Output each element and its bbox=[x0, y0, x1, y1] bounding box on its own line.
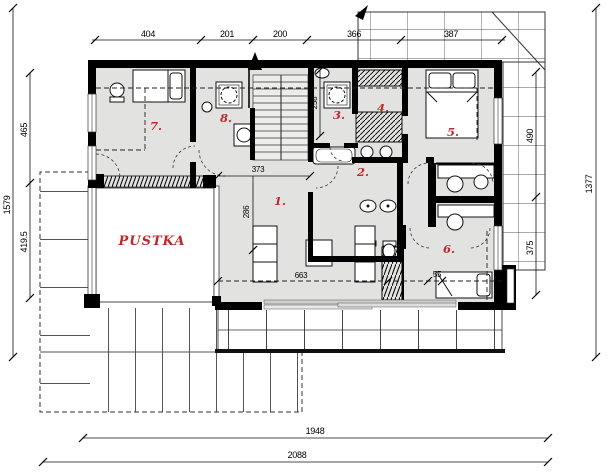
dim-left-inner-2: 419.5 bbox=[19, 231, 29, 252]
void-label: PUSTKA bbox=[117, 234, 185, 249]
wardrobe2-room4-icon bbox=[356, 112, 402, 142]
bed-room7-icon bbox=[133, 70, 185, 102]
armchair-right-icon bbox=[355, 226, 375, 282]
dim-top-4: 366 bbox=[347, 29, 361, 39]
dim-interior-286: 286 bbox=[242, 205, 251, 218]
dim-interior-258: 258 bbox=[310, 96, 319, 109]
dim-left-outer: 1579 bbox=[2, 195, 12, 214]
room-label-2: 2. bbox=[356, 165, 369, 179]
armchair-left-icon bbox=[253, 226, 277, 282]
room-label-7: 7. bbox=[150, 119, 162, 133]
dim-interior-55: 55 bbox=[433, 270, 442, 279]
stool-room7-icon bbox=[110, 83, 124, 102]
wardrobe-room4-icon bbox=[356, 70, 402, 86]
dim-right-inner-1: 490 bbox=[525, 129, 535, 143]
room-label-3: 3. bbox=[333, 108, 345, 122]
dim-bottom-1: 1948 bbox=[306, 426, 325, 436]
dim-interior-663: 663 bbox=[295, 271, 308, 280]
dim-top-1: 404 bbox=[141, 29, 155, 39]
dim-interior-373: 373 bbox=[252, 165, 265, 174]
floor-plan-drawing: 404 201 200 366 387 1579 465 419.5 1377 … bbox=[0, 0, 608, 474]
dim-left-inner-1: 465 bbox=[19, 123, 29, 137]
dim-top-3: 200 bbox=[273, 29, 287, 39]
bathtub-icon bbox=[313, 147, 355, 164]
room-label-4: 4. bbox=[377, 101, 389, 115]
dim-right-outer: 1377 bbox=[584, 174, 594, 193]
room-label-5: 5. bbox=[447, 125, 459, 139]
chair-room4-icon bbox=[361, 146, 373, 158]
terrace-deck bbox=[215, 308, 505, 353]
bed-room6-icon bbox=[436, 272, 492, 298]
sliding-door bbox=[262, 300, 458, 310]
chair2-room4-icon bbox=[380, 146, 392, 158]
floor-plan-canvas: 404 201 200 366 387 1579 465 419.5 1377 … bbox=[0, 0, 608, 474]
shower-room3-icon bbox=[324, 82, 350, 108]
room-label-6: 6. bbox=[443, 242, 455, 256]
dim-bottom-2: 2088 bbox=[288, 450, 307, 460]
balustrade-hatch bbox=[96, 176, 206, 187]
room-label-1: 1. bbox=[274, 194, 286, 208]
dim-right-inner-2: 375 bbox=[525, 241, 535, 255]
sink-room8-icon bbox=[202, 102, 212, 112]
dim-top-5: 387 bbox=[444, 29, 458, 39]
shower-room8-icon bbox=[216, 82, 242, 108]
dim-top-2: 201 bbox=[220, 29, 234, 39]
room-label-8: 8. bbox=[220, 111, 232, 125]
